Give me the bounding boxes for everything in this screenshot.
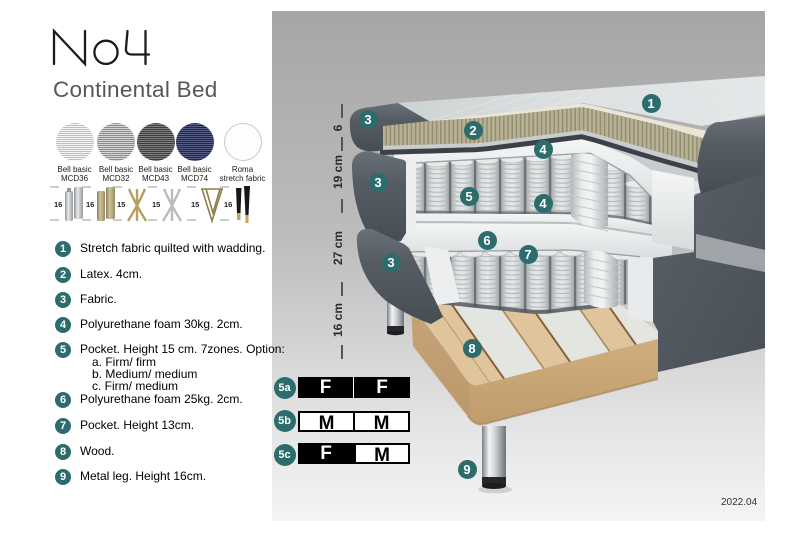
svg-text:15: 15 [117, 200, 125, 209]
svg-text:16: 16 [224, 200, 232, 209]
svg-text:16: 16 [54, 200, 62, 209]
svg-text:15: 15 [191, 200, 199, 209]
svg-text:15: 15 [152, 200, 160, 209]
svg-text:16: 16 [86, 200, 94, 209]
